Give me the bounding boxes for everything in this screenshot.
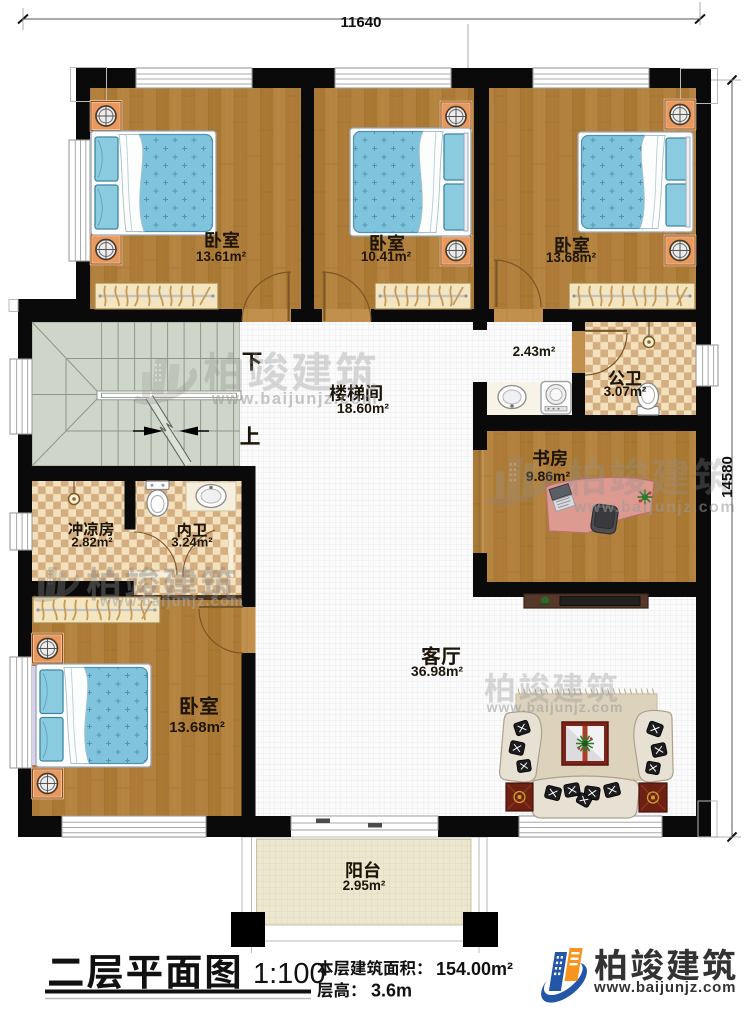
svg-text:14580: 14580 bbox=[719, 456, 736, 498]
svg-text:2.82m²: 2.82m² bbox=[71, 535, 113, 550]
svg-text:www.baijunjz.com: www.baijunjz.com bbox=[99, 594, 244, 610]
svg-text:3.6m: 3.6m bbox=[371, 981, 412, 1001]
svg-text:154.00m²: 154.00m² bbox=[436, 959, 513, 979]
svg-text:3.07m²: 3.07m² bbox=[604, 384, 647, 399]
svg-text:3.24m²: 3.24m² bbox=[171, 535, 213, 550]
svg-text:www.baijunjz.com: www.baijunjz.com bbox=[593, 979, 736, 996]
svg-text:www.baijunjz.com: www.baijunjz.com bbox=[486, 699, 624, 715]
svg-text:13.68m²: 13.68m² bbox=[546, 250, 597, 265]
svg-text:2.43m²: 2.43m² bbox=[513, 344, 556, 359]
svg-text:13.61m²: 13.61m² bbox=[196, 249, 247, 264]
svg-text:2.95m²: 2.95m² bbox=[343, 878, 386, 893]
svg-text:13.68m²: 13.68m² bbox=[169, 719, 225, 736]
svg-text:www.baijunjz.com: www.baijunjz.com bbox=[573, 499, 736, 516]
svg-text:1:100: 1:100 bbox=[253, 958, 326, 990]
svg-text:11640: 11640 bbox=[341, 14, 382, 31]
svg-text:www.baijunjz.com: www.baijunjz.com bbox=[211, 390, 378, 408]
svg-text:10.41m²: 10.41m² bbox=[361, 249, 412, 264]
svg-text:36.98m²: 36.98m² bbox=[411, 663, 463, 679]
